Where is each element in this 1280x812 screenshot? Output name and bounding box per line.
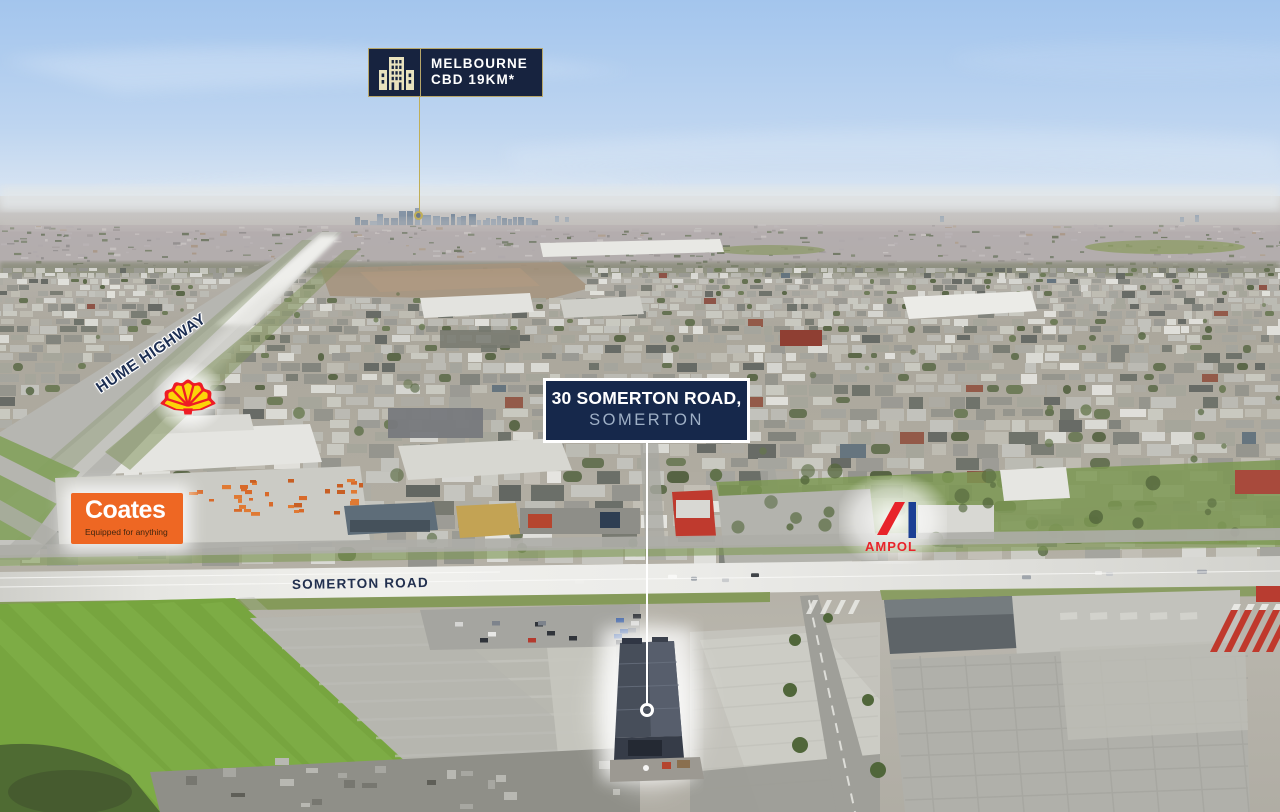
svg-text:AMPOL: AMPOL — [865, 539, 917, 554]
